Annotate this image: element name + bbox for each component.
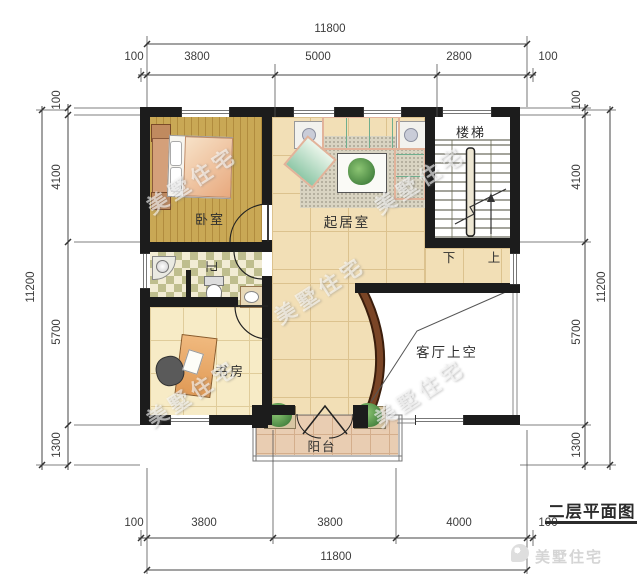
- room-label-balcony: 阳台: [296, 436, 348, 455]
- dim-bottom-seg0: 100: [120, 517, 148, 529]
- dim-right-seg2: 5700: [571, 312, 583, 352]
- dim-top-seg0: 100: [120, 51, 148, 63]
- room-label-living: 起居室: [307, 211, 387, 231]
- dim-left-total: 11200: [25, 267, 37, 307]
- room-label-bath: 卫: [204, 256, 221, 280]
- dim-left-seg2: 5700: [51, 312, 63, 352]
- dim-right-seg3: 1300: [571, 425, 583, 465]
- extension-lines: [36, 36, 616, 574]
- dim-top-seg4: 100: [534, 51, 562, 63]
- dim-right-seg0: 100: [571, 80, 583, 120]
- room-label-stairs: 楼梯: [443, 122, 499, 141]
- dim-right-seg1: 4100: [571, 157, 583, 197]
- dim-bottom-seg2: 3800: [300, 517, 360, 529]
- dim-top-seg2: 5000: [288, 51, 348, 63]
- dim-top-seg3: 2800: [429, 51, 489, 63]
- dim-left-seg3: 1300: [51, 425, 63, 465]
- dim-bottom-seg3: 4000: [429, 517, 489, 529]
- dim-right-total: 11200: [596, 267, 608, 307]
- dim-bottom-seg1: 3800: [174, 517, 234, 529]
- drawing-title: 二层平面图: [548, 498, 640, 522]
- dim-top-total: 11800: [300, 23, 360, 35]
- floor-plan-page: 卧室 起居室 楼梯 卫 书房 客厅上空 阳台 下 上 11800 100 380…: [0, 0, 640, 577]
- dimension-lines: [42, 44, 610, 570]
- dim-left-seg0: 100: [51, 80, 63, 120]
- dim-top-seg1: 3800: [167, 51, 227, 63]
- title-underline: [545, 521, 637, 524]
- dim-left-seg1: 4100: [51, 157, 63, 197]
- brand-logo-text: 美墅住宅: [535, 546, 603, 567]
- dim-bottom-total: 11800: [306, 551, 366, 563]
- stair-label-down: 下: [440, 247, 458, 266]
- brand-logo-icon: [511, 544, 529, 562]
- stair-label-up: 上: [485, 247, 503, 266]
- room-label-bedroom: 卧室: [187, 209, 233, 228]
